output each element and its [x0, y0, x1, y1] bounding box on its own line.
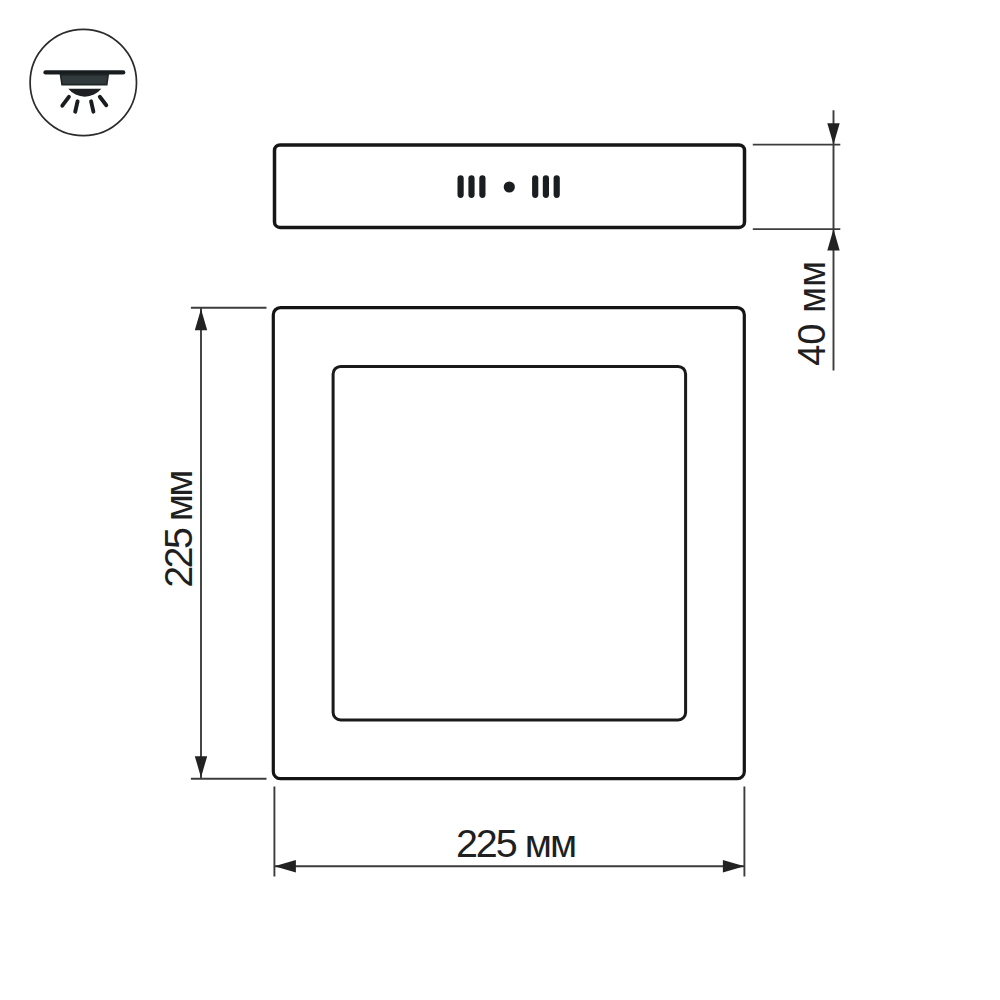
svg-text:225 мм: 225 мм: [156, 472, 200, 588]
svg-text:40 мм: 40 мм: [791, 261, 833, 366]
svg-text:225 мм: 225 мм: [456, 821, 575, 865]
